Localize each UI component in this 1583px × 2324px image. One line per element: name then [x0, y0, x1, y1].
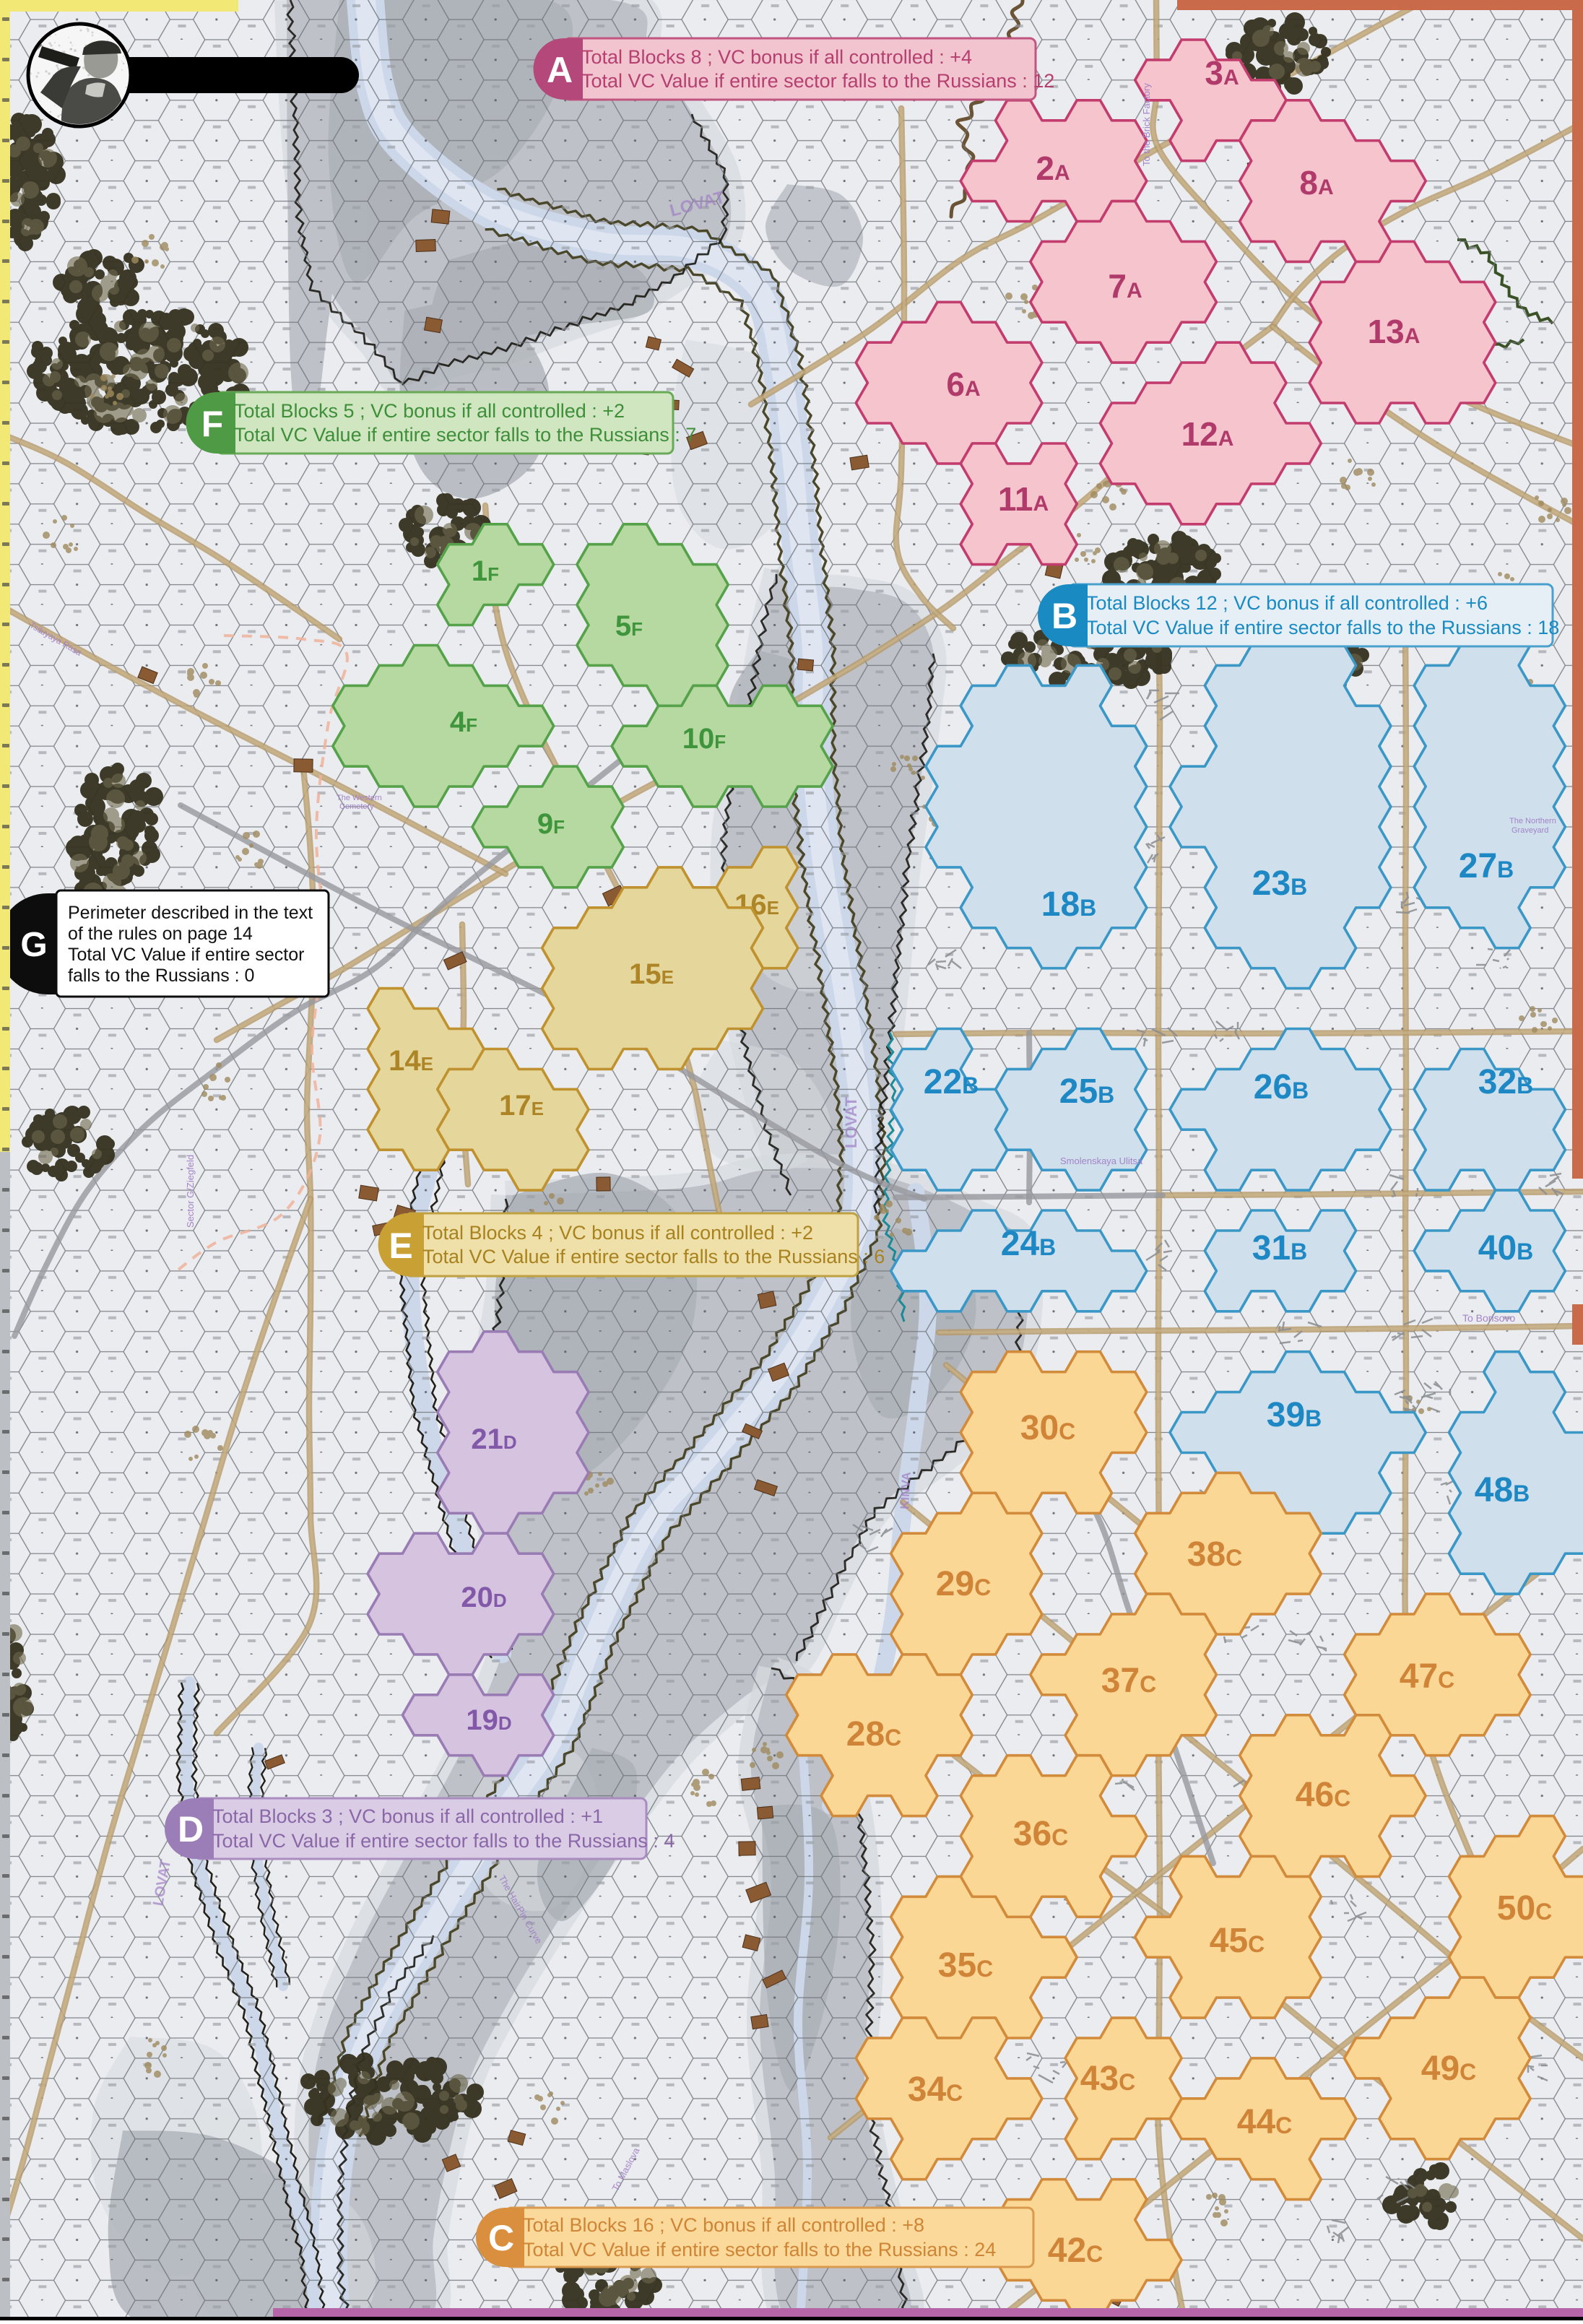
- svg-text:Perimeter described in the tex: Perimeter described in the text: [68, 903, 313, 923]
- svg-text:Total VC Value if entire secto: Total VC Value if entire sector falls to…: [234, 424, 696, 446]
- svg-text:Total VC Value if entire secto: Total VC Value if entire sector falls to…: [212, 1830, 675, 1852]
- svg-text:Total VC Value if entire secto: Total VC Value if entire sector falls to…: [422, 1246, 885, 1267]
- svg-text:Total Blocks 8 ; VC bonus if a: Total Blocks 8 ; VC bonus if all control…: [581, 46, 972, 68]
- svg-text:D: D: [178, 1809, 204, 1850]
- svg-text:C: C: [488, 2218, 514, 2258]
- svg-text:B: B: [1051, 596, 1077, 636]
- svg-text:Total Blocks 12 ; VC bonus if: Total Blocks 12 ; VC bonus if all contro…: [1086, 592, 1488, 614]
- svg-text:Total Blocks 3 ; VC bonus if a: Total Blocks 3 ; VC bonus if all control…: [212, 1805, 603, 1827]
- svg-text:Total VC Value if entire secto: Total VC Value if entire sector falls to…: [1086, 617, 1559, 638]
- svg-text:Total Blocks 4 ; VC bonus if a: Total Blocks 4 ; VC bonus if all control…: [422, 1222, 813, 1244]
- svg-text:Cemetery: Cemetery: [339, 802, 374, 811]
- svg-text:falls to the Russians : 0: falls to the Russians : 0: [68, 966, 254, 986]
- svg-text:G: G: [20, 926, 47, 964]
- svg-text:E: E: [389, 1226, 412, 1266]
- svg-text:Total Blocks 16 ; VC bonus if: Total Blocks 16 ; VC bonus if all contro…: [523, 2214, 924, 2236]
- svg-text:Total VC Value if entire secto: Total VC Value if entire sector falls to…: [523, 2239, 996, 2260]
- svg-text:of the rules on page 14: of the rules on page 14: [68, 924, 253, 944]
- svg-text:Total VC Value if entire secto: Total VC Value if entire sector: [68, 945, 304, 965]
- svg-text:Sector G/Ziegfeld: Sector G/Ziegfeld: [185, 1155, 196, 1228]
- svg-text:KINVA: KINVA: [898, 1472, 914, 1510]
- svg-text:A: A: [547, 50, 573, 90]
- svg-text:F: F: [201, 404, 224, 444]
- svg-text:To Borisovo: To Borisovo: [1462, 1312, 1515, 1324]
- svg-text:Graveyard: Graveyard: [1512, 826, 1548, 835]
- svg-text:The Western: The Western: [337, 794, 382, 802]
- svg-text:Total VC Value if entire secto: Total VC Value if entire sector falls to…: [581, 70, 1054, 92]
- svg-text:LOVAT: LOVAT: [842, 1096, 860, 1148]
- svg-text:To the Brick Factory: To the Brick Factory: [1141, 83, 1152, 166]
- svg-text:Smolenskaya Ulitsa: Smolenskaya Ulitsa: [1060, 1156, 1143, 1166]
- svg-text:The Northern: The Northern: [1509, 817, 1556, 825]
- svg-text:Total Blocks 5 ; VC bonus if a: Total Blocks 5 ; VC bonus if all control…: [234, 400, 625, 422]
